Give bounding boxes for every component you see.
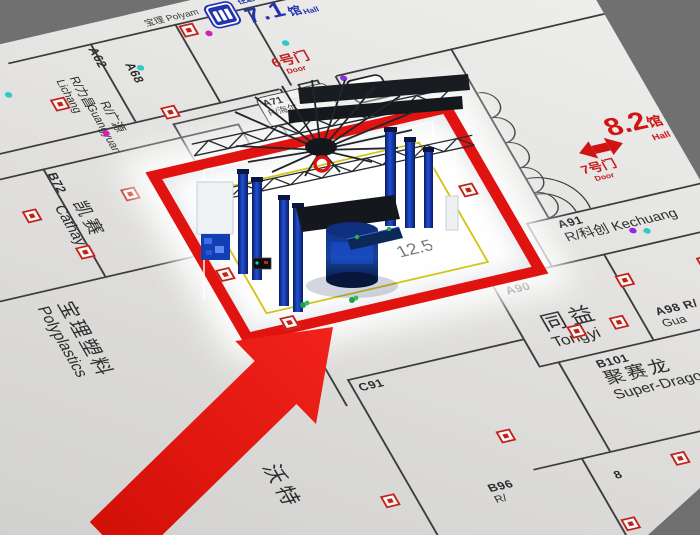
booth-line (174, 24, 221, 102)
fire-hydrant-icon (380, 493, 401, 508)
fire-hydrant-icon (495, 428, 516, 443)
fire-hydrant-icon (160, 105, 181, 120)
fire-hydrant-icon (609, 315, 630, 330)
booth-line (581, 458, 628, 535)
booth-code-c91: C91 (356, 377, 387, 394)
wall-line (450, 13, 605, 50)
utility-dot (281, 40, 291, 47)
floor-map-screenshot: 往返 To / From 7.1 馆 Hall 宝理 Polyam 6号门 Do… (0, 0, 700, 535)
booth-label-guangyuan: R/广源 Guangyuan (83, 100, 138, 155)
booth-label-b96: B96 R/ (485, 478, 522, 506)
fire-hydrant-icon (696, 255, 700, 270)
booth-label-polyplastics: 宝理塑料 Polyplastics (33, 299, 117, 383)
booth-line (603, 254, 654, 340)
wall-line (336, 49, 451, 77)
utility-dot (4, 91, 14, 98)
restroom-sign (344, 73, 394, 105)
booth-code-a62: A62 (84, 46, 109, 69)
door-6-label: 6号门 Door (269, 49, 317, 78)
booth-label-b101: B101 聚赛龙 Super-Dragon (594, 337, 700, 403)
fire-hydrant-icon (614, 273, 635, 288)
hall-sign-7-1: 往返 To / From 7.1 馆 Hall (202, 0, 321, 36)
booth-label-wote: 沃特 (257, 462, 307, 511)
utility-dot (204, 30, 214, 37)
utility-dot (642, 227, 652, 234)
fire-hydrant-icon (670, 451, 691, 466)
booth-line (347, 339, 523, 381)
booth-label-cathay: 凯赛 Cathay (50, 199, 111, 247)
metro-logo-icon (202, 0, 244, 30)
booth-line (172, 102, 268, 125)
booth-label-a98: A98 R/ Gua (653, 297, 700, 330)
hall-number: 7.1 (240, 0, 292, 28)
floor-plan-plane: 往返 To / From 7.1 馆 Hall 宝理 Polyam 6号门 Do… (0, 0, 700, 535)
person-icon (357, 79, 381, 99)
hall-en: Hall (302, 5, 321, 16)
booth-line (347, 379, 461, 535)
booth-code-b72: B72 (44, 171, 69, 194)
booth-code-8: 8 (611, 469, 625, 482)
fire-hydrant-icon (22, 208, 43, 223)
fire-hydrant-icon (120, 186, 141, 201)
booth-a71: A71 R/海尔 (255, 82, 342, 128)
